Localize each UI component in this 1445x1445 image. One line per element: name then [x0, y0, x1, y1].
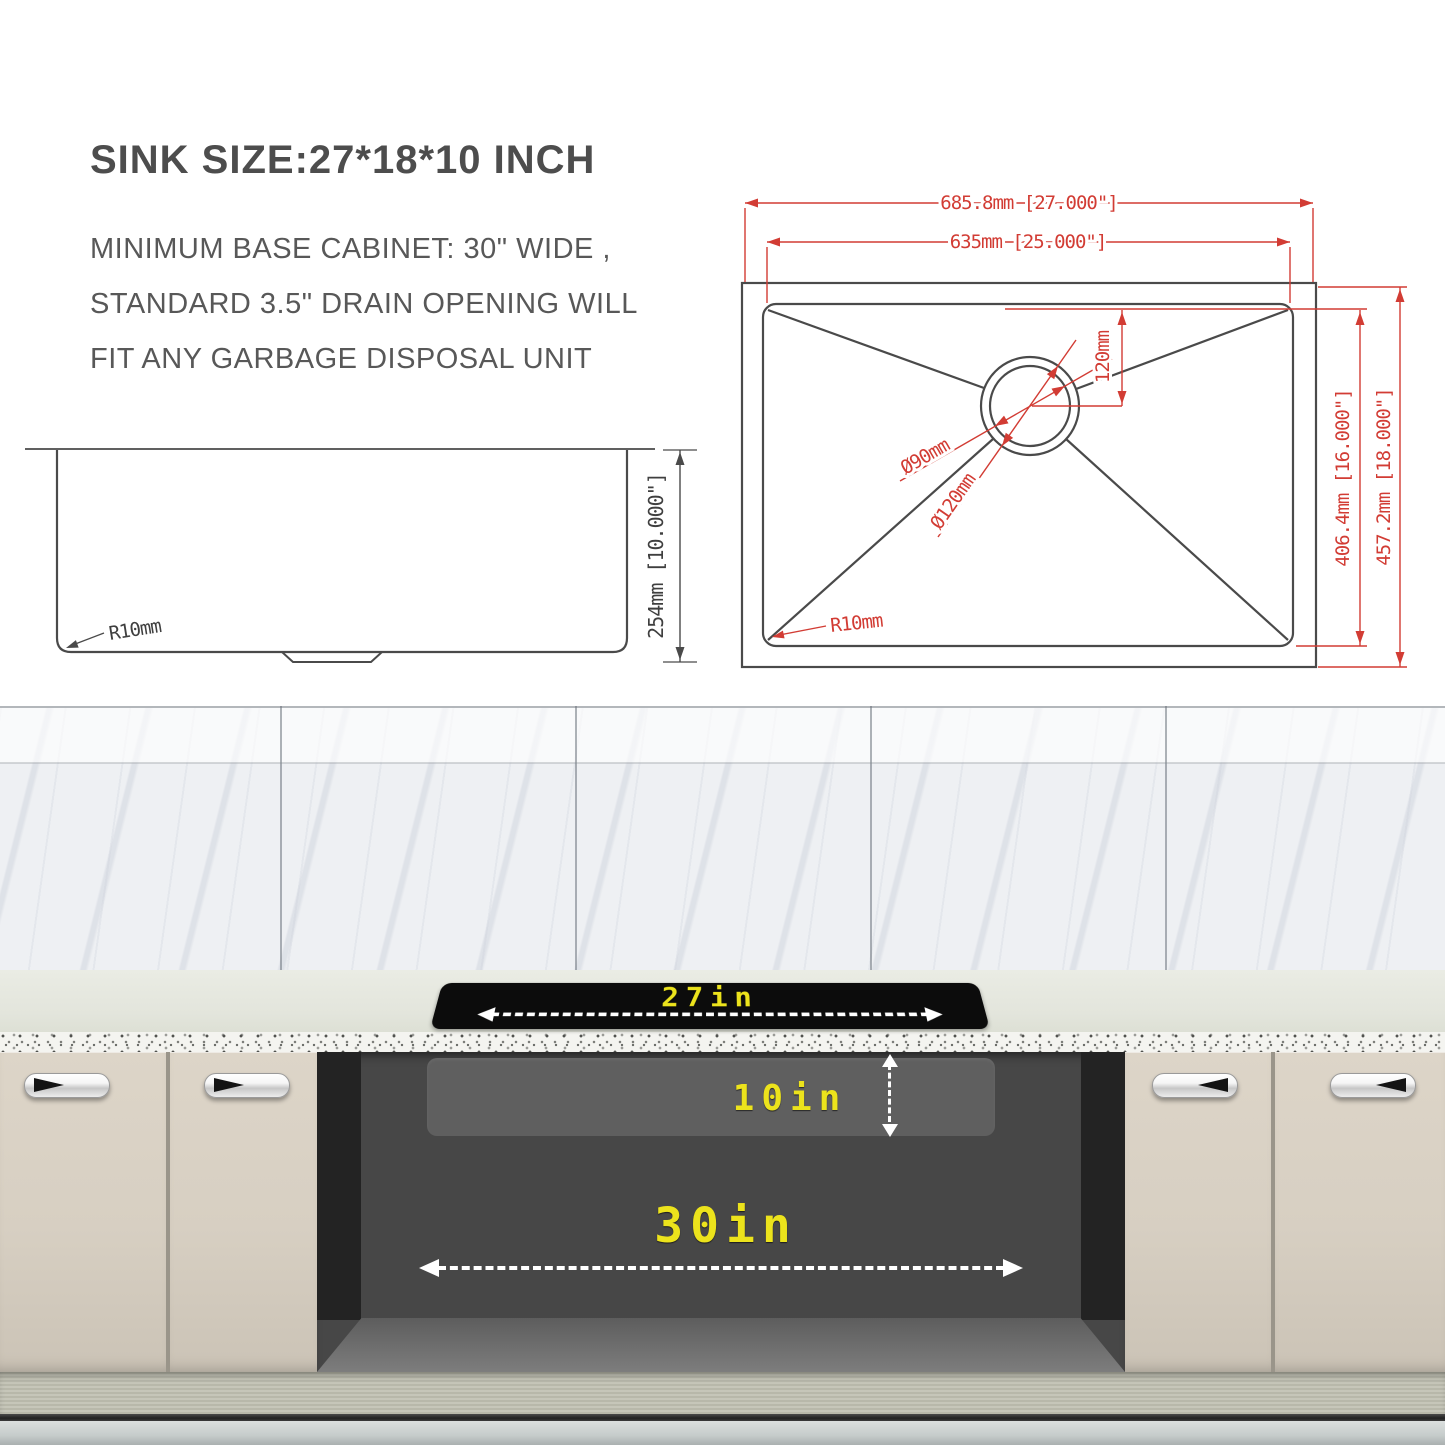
overall-width-label: 685.8mm [27.000"] — [940, 192, 1117, 214]
drain-offset-label: 120mm — [1092, 330, 1114, 383]
cabinet-side-wall-right — [1081, 1052, 1125, 1320]
cabinet-door — [170, 1052, 317, 1372]
plinth-shadow-line — [0, 1414, 1445, 1421]
granite-counter-edge — [0, 1032, 1445, 1053]
cabinet-door — [1275, 1052, 1445, 1372]
top-outer-rect — [742, 283, 1316, 667]
tile-horizontal-seam — [0, 762, 1445, 764]
tile-seam — [575, 706, 577, 970]
floor — [0, 1421, 1445, 1445]
drain-outer-diameter-label: Ø120mm — [926, 469, 980, 533]
cabinet-door — [0, 1052, 166, 1372]
arrowhead-up-icon — [882, 1054, 898, 1067]
door-handle — [24, 1073, 110, 1098]
arrowhead-left-icon — [476, 1007, 496, 1021]
side-corner-radius-label: R10mm — [107, 615, 163, 645]
side-depth-label: 254mm [10.000"] — [644, 473, 668, 639]
tile-seam — [1165, 706, 1167, 970]
top-view-dimension-arrows — [745, 199, 1405, 666]
arrowhead-right-icon — [924, 1007, 944, 1021]
arrowhead-down-icon — [882, 1124, 898, 1137]
door-handle — [1152, 1073, 1238, 1098]
arrowhead-left-icon — [419, 1259, 439, 1277]
top-corner-radius-label: R10mm — [829, 610, 884, 637]
side-drain-bump — [282, 652, 382, 662]
sink-cutout: 27in — [430, 983, 990, 1029]
toe-kick — [0, 1372, 1445, 1414]
top-inner-rect — [763, 304, 1293, 646]
cabinet-door — [1125, 1052, 1271, 1372]
overall-depth-label: 457.2mm [18.000"] — [1373, 388, 1395, 565]
sink-width-arrow — [491, 1013, 930, 1017]
sink-depth-label: 10in — [690, 1078, 890, 1119]
diag-bottom-right — [1066, 439, 1288, 640]
technical-drawings: R10mm 254mm [10.000"] — [0, 0, 1445, 706]
diag-top-left — [768, 310, 984, 388]
drain-inner-diameter-label: Ø90mm — [897, 434, 954, 479]
side-depth-arrow-bottom — [676, 647, 685, 660]
side-depth-arrow-top — [676, 452, 685, 465]
product-spec-image: SINK SIZE:27*18*10 INCH MINIMUM BASE CAB… — [0, 0, 1445, 1445]
bowl-depth-label: 406.4mm [16.000"] — [1332, 389, 1354, 566]
cabinet-side-wall-left — [317, 1052, 361, 1320]
door-handle — [204, 1073, 290, 1098]
top-view-drawing — [742, 283, 1316, 667]
cabinet-width-label: 30in — [626, 1198, 826, 1254]
cabinet-width-arrow — [438, 1266, 1004, 1270]
bowl-width-label: 635mm [25.000"] — [950, 231, 1107, 253]
marble-backsplash — [0, 706, 1445, 972]
door-handle — [1330, 1073, 1416, 1098]
tile-seam — [870, 706, 872, 970]
top-view-dimensions — [745, 203, 1407, 667]
cabinet-floor — [317, 1318, 1125, 1372]
arrowhead-right-icon — [1003, 1259, 1023, 1277]
sink-depth-arrow — [888, 1064, 891, 1122]
side-radius-arrow — [65, 640, 79, 652]
tile-seam — [280, 706, 282, 970]
sink-width-label: 27in — [434, 983, 986, 1014]
